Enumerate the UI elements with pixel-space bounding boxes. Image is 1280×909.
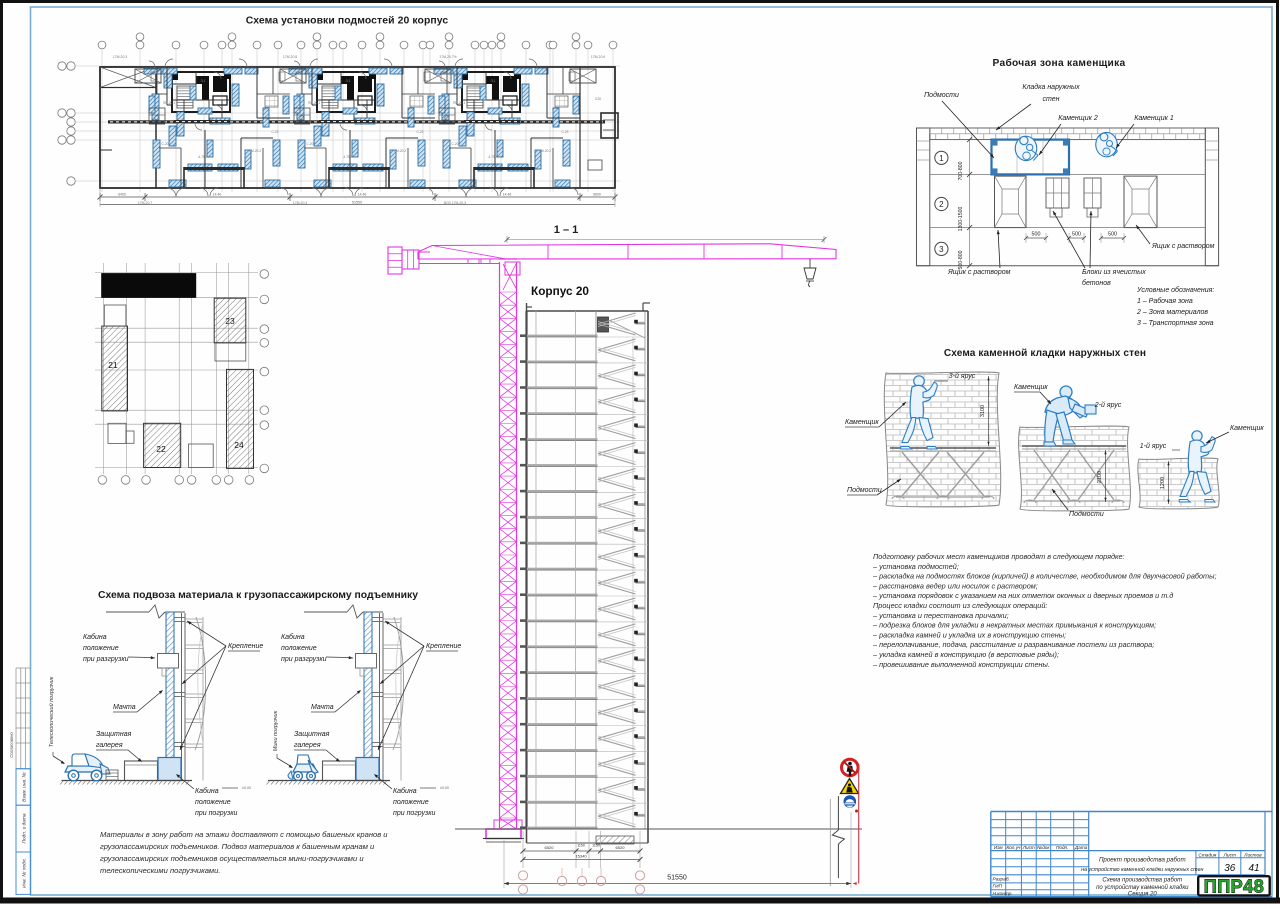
- svg-text:3100: 3100: [980, 405, 986, 417]
- svg-text:Мачта: Мачта: [113, 704, 136, 711]
- svg-text:стен: стен: [1042, 96, 1059, 103]
- svg-text:Крепление: Крепление: [426, 643, 461, 650]
- svg-text:-4.750: -4.750: [342, 155, 351, 159]
- svg-text:500: 500: [1072, 232, 1081, 238]
- svg-text:– раскладка камней и укладка: – раскладка камней и укладка их в констр…: [872, 630, 1066, 639]
- svg-text:ВОЗ 17М-20.3: ВОЗ 17М-20.3: [444, 201, 466, 205]
- svg-text:14.46: 14.46: [503, 193, 512, 197]
- svg-text:Секция 20: Секция 20: [1128, 891, 1157, 897]
- svg-text:1: 1: [939, 154, 944, 163]
- svg-text:51550: 51550: [352, 201, 362, 205]
- svg-text:С-23: С-23: [417, 130, 424, 134]
- svg-text:6400: 6400: [118, 193, 126, 197]
- svg-text:1 – 1: 1 – 1: [554, 224, 578, 236]
- svg-text:Схема каменной кладки наружных: Схема каменной кладки наружных стен: [944, 348, 1146, 359]
- svg-text:ПМ-20.1: ПМ-20.1: [453, 101, 465, 105]
- svg-text:Проект производства работ: Проект производства работ: [1099, 857, 1186, 864]
- svg-text:– установка подмостей;: – установка подмостей;: [872, 562, 959, 571]
- svg-text:– расстановка ведер или носил: – расстановка ведер или носилок с раство…: [872, 581, 1038, 590]
- svg-text:С-23: С-23: [562, 130, 569, 134]
- svg-text:галерея: галерея: [294, 742, 321, 749]
- svg-text:Каменщик 1: Каменщик 1: [1134, 115, 1174, 122]
- svg-text:1300-1500: 1300-1500: [958, 206, 964, 231]
- svg-text:положение: положение: [281, 645, 317, 652]
- svg-text:Материалы в зону работ на: Материалы в зону работ на этажи доставля…: [100, 830, 388, 839]
- svg-text:Условные обозначения:: Условные обозначения:: [1136, 286, 1214, 294]
- svg-text:500-800: 500-800: [958, 250, 964, 269]
- svg-text:Л-1: Л-1: [201, 79, 206, 83]
- svg-text:– установка и перестановка пр: – установка и перестановка причалки;: [872, 611, 1009, 620]
- svg-text:6520: 6520: [616, 845, 626, 850]
- svg-text:Мачта: Мачта: [311, 704, 334, 711]
- svg-text:500: 500: [1032, 232, 1041, 238]
- svg-text:41: 41: [1248, 863, 1259, 874]
- svg-text:Дата: Дата: [1074, 845, 1088, 850]
- svg-text:Л-1: Л-1: [491, 79, 496, 83]
- svg-text:на устройство каменной кладки: на устройство каменной кладки наружных с…: [1081, 866, 1203, 873]
- svg-text:С20: С20: [595, 97, 601, 101]
- svg-text:±0.00: ±0.00: [440, 786, 449, 790]
- svg-text:-4.750: -4.750: [487, 155, 496, 159]
- svg-text:17М-20.8: 17М-20.8: [283, 55, 297, 59]
- svg-text:– укладка камней в конструкци: – укладка камней в конструкцию (в версто…: [872, 650, 1059, 659]
- svg-text:грузопассажирских подъемник: грузопассажирских подъемников осуществля…: [100, 854, 364, 863]
- svg-text:при погрузки: при погрузки: [393, 810, 436, 817]
- svg-text:Каменщик: Каменщик: [845, 419, 879, 426]
- svg-text:– установка порядовок с указа: – установка порядовок с указанием на них…: [872, 591, 1173, 600]
- svg-text:грузопассажирских подъемников: грузопассажирских подъемников. Подвоз ма…: [100, 842, 375, 851]
- svg-text:Кол.уч: Кол.уч: [1007, 845, 1022, 850]
- svg-text:– провешивание выполненной ко: – провешивание выполненной конструкции с…: [872, 660, 1050, 669]
- svg-text:Крепление: Крепление: [228, 643, 263, 650]
- svg-text:– подрезка блоков для укладки: – подрезка блоков для укладки в некратны…: [872, 621, 1156, 630]
- svg-text:положение: положение: [195, 799, 231, 806]
- svg-text:Стадия: Стадия: [1198, 852, 1216, 858]
- svg-text:51550: 51550: [667, 875, 687, 882]
- svg-text:Л-1: Л-1: [346, 79, 351, 83]
- svg-text:Блоки из ячеистых: Блоки из ячеистых: [1082, 269, 1146, 276]
- svg-text:ПМ-20.2: ПМ-20.2: [394, 149, 406, 153]
- svg-text:Кабина: Кабина: [195, 787, 219, 795]
- svg-text:Кабина: Кабина: [393, 787, 417, 795]
- svg-text:15340: 15340: [575, 854, 587, 859]
- svg-text:Н.контр.: Н.контр.: [993, 891, 1013, 897]
- svg-text:Каменщик: Каменщик: [1014, 384, 1048, 391]
- svg-text:6520: 6520: [545, 845, 555, 850]
- svg-text:Рабочая зона каменщика: Рабочая зона каменщика: [993, 57, 1126, 69]
- svg-text:при разгрузки: при разгрузки: [281, 656, 327, 663]
- svg-text:17М-20.3: 17М-20.3: [113, 55, 127, 59]
- svg-text:Мини погрузчик: Мини погрузчик: [273, 710, 279, 751]
- svg-text:Схема подвоза материала к груз: Схема подвоза материала к грузопассажирс…: [98, 590, 418, 601]
- svg-text:положение: положение: [393, 799, 429, 806]
- svg-text:1200: 1200: [1160, 477, 1166, 489]
- svg-text:по устройству каменной кладки: по устройству каменной кладки: [1096, 884, 1189, 891]
- svg-text:– раскладка на подмостях блок: – раскладка на подмостях блоков (кирпиче…: [872, 572, 1217, 581]
- svg-text:телескопическими погрузчиками: телескопическими погрузчиками.: [100, 866, 220, 875]
- svg-text:С-20: С-20: [307, 142, 314, 146]
- svg-text:22: 22: [156, 444, 166, 454]
- svg-text:ПМ-20.1: ПМ-20.1: [163, 101, 175, 105]
- svg-text:Кабина: Кабина: [281, 633, 305, 641]
- svg-text:±0.00: ±0.00: [242, 786, 251, 790]
- svg-text:36: 36: [1224, 863, 1236, 874]
- svg-text:Защитная: Защитная: [96, 731, 132, 738]
- svg-text:Корпус 20: Корпус 20: [531, 284, 589, 298]
- svg-text:– перелопачивание, подача, ра: – перелопачивание, подача, расстилание и…: [872, 640, 1154, 649]
- svg-text:1-й ярус: 1-й ярус: [1140, 442, 1167, 450]
- svg-text:Каменщик: Каменщик: [1230, 425, 1264, 432]
- svg-text:№док: №док: [1037, 845, 1050, 850]
- svg-text:С-20: С-20: [162, 142, 169, 146]
- svg-text:Подмости: Подмости: [924, 91, 959, 99]
- svg-text:17М-20.6: 17М-20.6: [591, 55, 605, 59]
- svg-text:Каменщик 2: Каменщик 2: [1058, 115, 1098, 122]
- svg-text:17М-20.3: 17М-20.3: [293, 201, 307, 205]
- svg-text:ППР48: ППР48: [1204, 876, 1264, 896]
- svg-text:Изм: Изм: [994, 845, 1003, 850]
- svg-text:Инв. № подл.: Инв. № подл.: [22, 858, 28, 888]
- svg-text:ГИП: ГИП: [993, 884, 1003, 890]
- svg-text:Схема производства работ: Схема производства работ: [1102, 878, 1182, 884]
- svg-text:Подп. и дата: Подп. и дата: [22, 813, 28, 843]
- svg-text:14.40: 14.40: [213, 193, 222, 197]
- svg-text:2-й ярус: 2-й ярус: [1094, 401, 1122, 409]
- svg-text:3-й ярус: 3-й ярус: [949, 372, 976, 380]
- svg-text:Лист: Лист: [1022, 845, 1035, 850]
- svg-text:2 – Зона материалов: 2 – Зона материалов: [1136, 309, 1208, 316]
- svg-text:Согласовано: Согласовано: [9, 732, 14, 758]
- svg-text:Процесс кладки состоит из след: Процесс кладки состоит из следующих опер…: [873, 601, 1047, 610]
- svg-text:23: 23: [225, 316, 235, 326]
- svg-text:700-800: 700-800: [958, 161, 964, 180]
- svg-text:С-20: С-20: [452, 142, 459, 146]
- svg-text:Подмости: Подмости: [847, 486, 882, 494]
- svg-text:-4.750: -4.750: [197, 155, 206, 159]
- svg-text:ПМ-20.2: ПМ-20.2: [249, 149, 261, 153]
- svg-text:17М-20.7: 17М-20.7: [138, 201, 152, 205]
- svg-text:ПМ-20.1: ПМ-20.1: [308, 101, 320, 105]
- svg-text:6600: 6600: [593, 193, 601, 197]
- svg-text:Лист: Лист: [1223, 852, 1236, 858]
- svg-text:Кладка наружных: Кладка наружных: [1022, 83, 1080, 91]
- svg-text:Кабина: Кабина: [83, 633, 107, 641]
- svg-text:17М-20.7%: 17М-20.7%: [439, 55, 456, 59]
- svg-text:Защитная: Защитная: [294, 731, 330, 738]
- svg-text:Ящик с раствором: Ящик с раствором: [947, 269, 1011, 276]
- svg-text:1150: 1150: [592, 844, 600, 848]
- svg-text:Подп.: Подп.: [1056, 845, 1068, 850]
- svg-text:Телескопический погрузчик: Телескопический погрузчик: [48, 676, 55, 747]
- svg-text:положение: положение: [83, 645, 119, 652]
- svg-text:2100: 2100: [1097, 471, 1103, 483]
- svg-text:Листов: Листов: [1243, 852, 1262, 858]
- svg-text:3: 3: [939, 245, 944, 254]
- svg-text:Подготовку рабочих мест каменщ: Подготовку рабочих мест каменщиков прово…: [873, 552, 1125, 561]
- svg-text:Схема установки подмостей 20 к: Схема установки подмостей 20 корпус: [246, 16, 449, 27]
- svg-text:2: 2: [939, 200, 944, 209]
- svg-text:Взам. инв. №: Взам. инв. №: [22, 772, 28, 802]
- svg-text:24: 24: [234, 440, 244, 450]
- svg-text:500: 500: [1108, 232, 1117, 238]
- svg-text:бетонов: бетонов: [1082, 279, 1111, 287]
- svg-text:1150: 1150: [577, 844, 585, 848]
- svg-text:С-23: С-23: [272, 130, 279, 134]
- svg-text:Подмости: Подмости: [1069, 510, 1104, 518]
- svg-text:14.46: 14.46: [358, 193, 367, 197]
- svg-text:21: 21: [108, 360, 118, 370]
- svg-text:при разгрузки: при разгрузки: [83, 656, 129, 663]
- svg-text:3 – Транспортная зона: 3 – Транспортная зона: [1137, 320, 1214, 327]
- svg-text:ПМ-20.2: ПМ-20.2: [539, 149, 551, 153]
- svg-text:Разраб.: Разраб.: [993, 877, 1010, 883]
- svg-text:Ящик с раствором: Ящик с раствором: [1151, 243, 1215, 250]
- svg-text:1 – Рабочая зона: 1 – Рабочая зона: [1137, 297, 1193, 305]
- svg-text:галерея: галерея: [96, 742, 123, 749]
- svg-text:при погрузки: при погрузки: [195, 810, 238, 817]
